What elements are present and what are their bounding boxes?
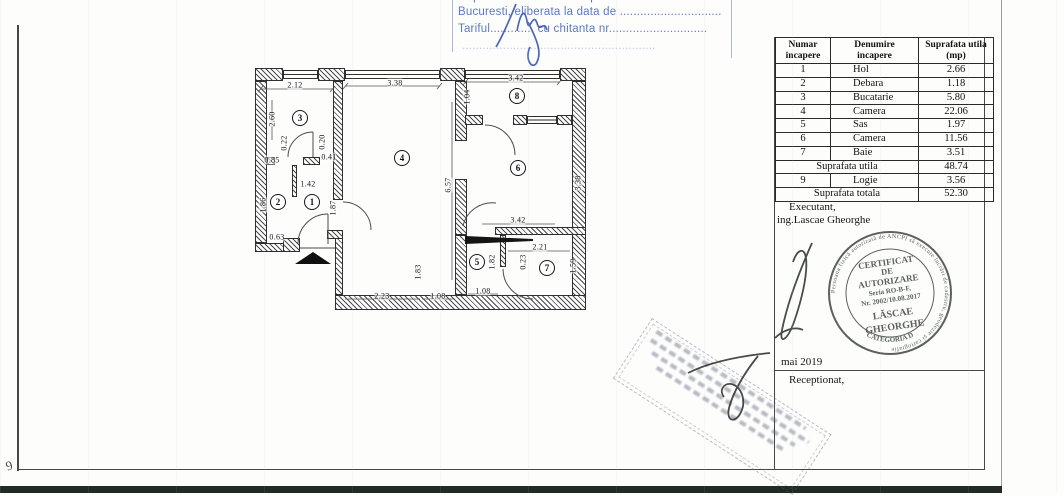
table-cell: 1.97 bbox=[919, 119, 994, 133]
table-row: 2Debara1.18 bbox=[776, 77, 994, 91]
entrance-arrow-icon bbox=[295, 252, 331, 264]
dimension-label: 1.86 bbox=[259, 197, 268, 212]
executant-label: Executant, bbox=[789, 201, 836, 213]
room-number: 1 bbox=[304, 194, 320, 210]
table-cell: 2 bbox=[776, 77, 831, 91]
wall bbox=[255, 68, 283, 81]
dimension-label: 0.41 bbox=[321, 153, 336, 162]
wall-interior bbox=[455, 235, 467, 295]
room-number: 5 bbox=[469, 254, 485, 270]
table-cell: 5.80 bbox=[919, 91, 994, 105]
window bbox=[527, 116, 557, 124]
receptionat-label: Receptionat, bbox=[789, 374, 844, 386]
table-cell: Suprafata utila bbox=[776, 160, 919, 174]
dimension-label: 1.04 bbox=[463, 89, 472, 104]
table-cell: 3.51 bbox=[919, 146, 994, 160]
table-total-row: Suprafata totala52.30 bbox=[776, 188, 994, 202]
ghost-stamp-inner-border bbox=[618, 324, 826, 490]
table-row: 7Baie3.51 bbox=[776, 146, 994, 160]
dimension-label: 2.21 bbox=[532, 243, 547, 252]
margin-mark: 9 bbox=[4, 457, 15, 474]
table-cell: 2.66 bbox=[919, 64, 994, 78]
wall-interior bbox=[333, 81, 343, 200]
table-row: 6Camera11.56 bbox=[776, 132, 994, 146]
dimension-label: 1.42 bbox=[300, 180, 315, 189]
wall-interior bbox=[303, 157, 320, 165]
col-header-denumire: Denumire incapere bbox=[831, 38, 919, 64]
table-cell: 48.74 bbox=[919, 160, 994, 174]
dimension-label: 0.22 bbox=[280, 135, 289, 150]
col-header-numar: Numar incapere bbox=[776, 38, 831, 64]
room-number: 3 bbox=[292, 110, 308, 126]
dimension-label: 0.85 bbox=[264, 156, 279, 165]
wall-interior bbox=[495, 227, 586, 235]
window bbox=[283, 70, 318, 79]
wall-interior bbox=[465, 115, 483, 125]
wall bbox=[560, 68, 586, 81]
wall-interior bbox=[292, 165, 297, 197]
table-cell: 1.18 bbox=[919, 77, 994, 91]
table-cell: 52.30 bbox=[919, 188, 994, 202]
dimension-label: 2.12 bbox=[287, 81, 302, 90]
dimension-label: 1.82 bbox=[488, 254, 497, 269]
table-cell: 4 bbox=[776, 105, 831, 119]
header-stamp-line2: Bucuresti, eliberata la data de ........… bbox=[458, 6, 722, 18]
table-cell: 7 bbox=[776, 146, 831, 160]
dimension-label: 1.08 bbox=[430, 292, 445, 301]
wall-interior bbox=[513, 115, 527, 125]
table-cell: Suprafata totala bbox=[776, 188, 919, 202]
dimension-label: 0.63 bbox=[269, 233, 284, 242]
dimension-label: 1.08 bbox=[475, 287, 490, 296]
room-number: 8 bbox=[509, 88, 525, 104]
table-cell: 5 bbox=[776, 119, 831, 133]
panel-divider-line bbox=[774, 370, 985, 371]
wall bbox=[327, 230, 343, 239]
dimension-label: 1.59 bbox=[569, 258, 578, 273]
wedge-mark bbox=[465, 236, 533, 244]
table-cell: Debara bbox=[831, 77, 919, 91]
wall-interior bbox=[455, 179, 467, 235]
table-row: 4Camera22.06 bbox=[776, 105, 994, 119]
dimension-label: 0.20 bbox=[318, 134, 327, 149]
room-number: 7 bbox=[539, 260, 555, 276]
scan-right-edge bbox=[1001, 0, 1002, 487]
dimension-label: 1.87 bbox=[329, 200, 338, 215]
table-cell: Sas bbox=[831, 119, 919, 133]
header-stamp-line3: Tariful............. cu chitanta nr.....… bbox=[458, 23, 707, 35]
wall bbox=[440, 68, 465, 81]
table-cell: Baie bbox=[831, 146, 919, 160]
room-number: 6 bbox=[510, 160, 526, 176]
table-row: 9Logie3.56 bbox=[776, 174, 994, 188]
table-cell: Camera bbox=[831, 132, 919, 146]
wall bbox=[318, 68, 345, 81]
table-cell: 6 bbox=[776, 132, 831, 146]
table-cell: Camera bbox=[831, 105, 919, 119]
table-row: 5Sas1.97 bbox=[776, 119, 994, 133]
dimension-label: 0.23 bbox=[519, 254, 528, 269]
table-cell: 3.56 bbox=[919, 174, 994, 188]
table-subtotal-row: Suprafata utila48.74 bbox=[776, 160, 994, 174]
table-row: 3Bucatarie5.80 bbox=[776, 91, 994, 105]
room-number: 2 bbox=[270, 194, 286, 210]
wall-interior bbox=[557, 115, 572, 125]
floor-plan: 2.123.383.422.601.040.220.200.850.411.42… bbox=[250, 62, 595, 317]
table-cell: Bucatarie bbox=[831, 91, 919, 105]
wall-right bbox=[572, 81, 586, 310]
wall-bottom bbox=[335, 295, 586, 310]
wall bbox=[335, 230, 343, 295]
table-cell: 11.56 bbox=[919, 132, 994, 146]
table-cell: 22.06 bbox=[919, 105, 994, 119]
header-stamp-left-border bbox=[452, 0, 453, 52]
header-stamp-right-border bbox=[731, 0, 732, 58]
wall bbox=[283, 238, 300, 252]
plan-linework bbox=[250, 62, 595, 317]
room-number: 4 bbox=[394, 150, 410, 166]
dimension-label: 3.38 bbox=[574, 175, 583, 190]
col-header-suprafata: Suprafata utila (mp) bbox=[919, 38, 994, 64]
area-table: Numar incapere Denumire incapere Suprafa… bbox=[775, 37, 994, 202]
scan-bottom-band bbox=[0, 486, 1002, 493]
scanned-cadastral-document: { "header_stamp": { "line1": "Copie conf… bbox=[0, 0, 1064, 493]
table-cell: Hol bbox=[831, 64, 919, 78]
table-cell: 3 bbox=[776, 91, 831, 105]
dimension-label: 2.23 bbox=[374, 292, 389, 301]
document-bottom-line bbox=[19, 469, 985, 470]
round-stamp: Persoana fizică autorizată de ANCPI să e… bbox=[815, 218, 965, 368]
dimension-label: 2.60 bbox=[268, 111, 277, 126]
dimension-label: 6.57 bbox=[444, 177, 453, 192]
table-cell: 9 bbox=[776, 174, 831, 188]
table-cell: Logie bbox=[831, 174, 919, 188]
dimension-label: 3.42 bbox=[508, 74, 523, 83]
dimension-label: 1.83 bbox=[414, 264, 423, 279]
dimension-label: 3.42 bbox=[510, 216, 525, 225]
header-stamp-line4: ........................................… bbox=[462, 40, 656, 52]
dimension-label: 3.38 bbox=[387, 79, 402, 88]
header-stamp-clipped-line: Copie conforma cu exemplarul din arhiva … bbox=[456, 0, 728, 5]
table-cell: 1 bbox=[776, 64, 831, 78]
scan-left-edge bbox=[17, 25, 19, 471]
table-row: 1Hol2.66 bbox=[776, 64, 994, 78]
